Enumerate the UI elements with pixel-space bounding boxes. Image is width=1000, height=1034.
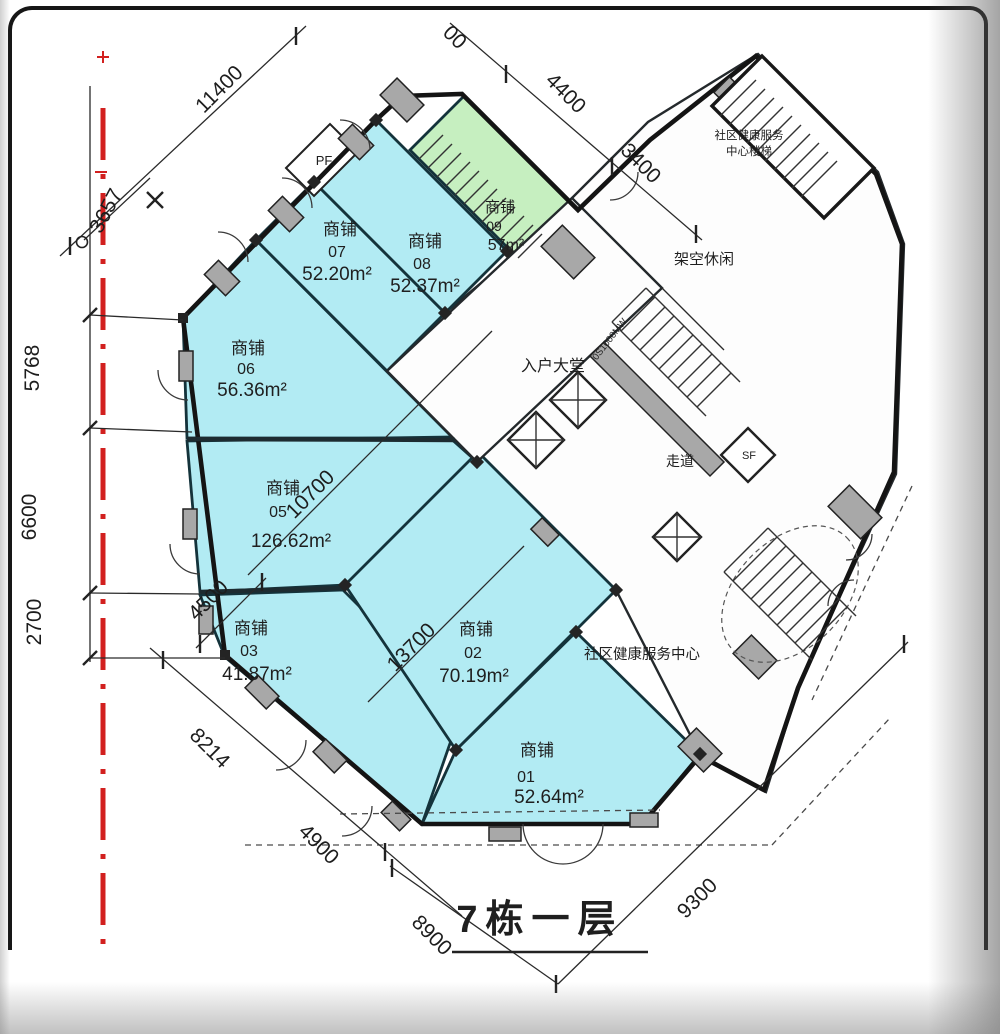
shop-05-area: 126.62m² [251,531,331,552]
shop-05-number: 05 [269,504,287,521]
pf-label: PF [316,153,333,168]
dim-2700: 2700 [23,599,46,646]
shop-06-label: 商铺 [231,339,265,358]
dim-9300: 9300 [673,874,722,923]
shop-01-label: 商铺 [520,741,554,760]
shop-02-number: 02 [464,645,482,662]
sf-label: SF [742,450,756,462]
stair-label-line2: 中心楼梯 [726,144,772,158]
shop-03-label: 商铺 [234,619,268,638]
shop-01-number: 01 [517,769,535,786]
shop-02-area: 70.19m² [439,666,509,687]
shop-07-label: 商铺 [323,220,357,239]
dim-11400: 11400 [191,61,247,117]
shop-09-area: 57m² [488,237,525,254]
corridor-label: 走道 [666,453,694,469]
shop-09-number: 09 [486,218,502,234]
dim-00-fragment: 00 [438,21,471,54]
health-center-label: 社区健康服务中心 [584,646,700,663]
dim-8214: 8214 [185,724,235,774]
shop-07-area: 52.20m² [302,264,372,285]
plan-title: 7栋一层 [456,899,623,941]
shop-08-area: 52.37m² [390,276,460,297]
shop-06-area: 56.36m² [217,380,287,401]
leisure-label: 架空休闲 [674,251,734,268]
floorplan-photo: 11400 00 4400 3400 3657 5768 6600 2700 8… [0,0,1000,1034]
shop-01-area: 52.64m² [514,787,584,808]
dim-3657: 3657 [85,185,127,237]
lobby-label: 入户大堂 [521,357,585,375]
shop-02-label: 商铺 [459,620,493,639]
dim-5768: 5768 [21,345,44,392]
dim-6600: 6600 [18,494,41,541]
shop-09-label: 商铺 [485,199,515,216]
floorplan-drawing: 11400 00 4400 3400 3657 5768 6600 2700 8… [0,0,1000,1034]
shop-03-number: 03 [240,643,258,660]
shop-08-label: 商铺 [408,232,442,251]
shop-06-number: 06 [237,361,255,378]
shop-08-number: 08 [413,256,431,273]
stair-label-line1: 社区健康服务 [715,128,784,142]
dim-4400: 4400 [541,69,590,118]
shop-05-label: 商铺 [266,479,300,498]
shop-07-number: 07 [328,244,346,261]
dim-8900: 8900 [407,911,456,960]
shop-03-area: 41.87m² [222,664,292,685]
